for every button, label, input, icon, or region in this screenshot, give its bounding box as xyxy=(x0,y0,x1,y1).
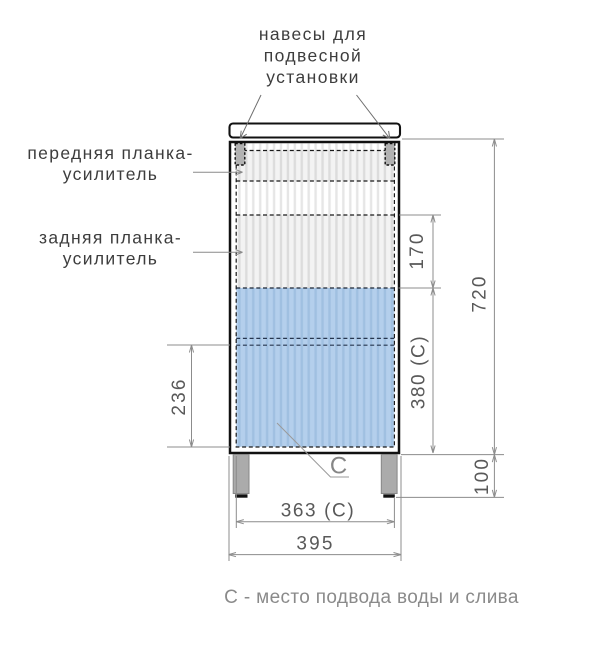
svg-text:С: С xyxy=(330,453,347,480)
svg-text:усилитель: усилитель xyxy=(63,164,159,184)
svg-text:С - место подвода воды и слива: С - место подвода воды и слива xyxy=(224,587,519,608)
svg-text:236: 236 xyxy=(169,377,190,415)
svg-text:передняя планка-: передняя планка- xyxy=(27,143,193,163)
svg-text:380 (С): 380 (С) xyxy=(409,335,430,410)
svg-text:100: 100 xyxy=(472,457,493,495)
svg-text:навесы для: навесы для xyxy=(259,24,367,44)
svg-text:усилитель: усилитель xyxy=(63,249,159,269)
svg-text:363 (С): 363 (С) xyxy=(281,501,356,522)
svg-text:подвесной: подвесной xyxy=(264,46,362,66)
svg-text:170: 170 xyxy=(407,231,428,269)
svg-text:задняя планка-: задняя планка- xyxy=(39,227,182,247)
svg-text:установки: установки xyxy=(266,67,360,87)
svg-text:720: 720 xyxy=(470,274,491,312)
svg-text:395: 395 xyxy=(296,534,334,555)
